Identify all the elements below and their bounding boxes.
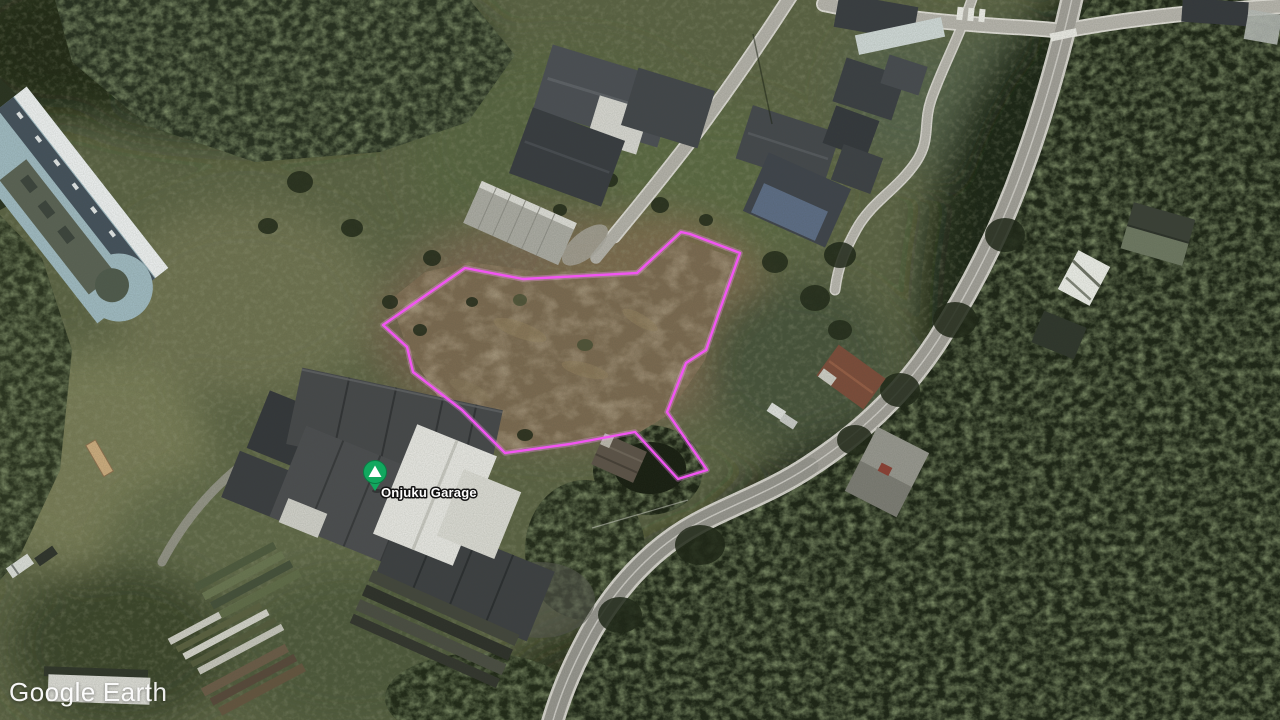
place-label: Onjuku Garage (381, 485, 477, 500)
watermark-google: Google (9, 677, 96, 707)
imagery-grain-overlay (0, 0, 1280, 720)
google-earth-watermark: GoogleEarth (9, 677, 168, 708)
earth-map-canvas[interactable]: Onjuku Garage GoogleEarth (0, 0, 1280, 720)
satellite-imagery: Onjuku Garage (0, 0, 1280, 720)
watermark-earth: Earth (103, 677, 168, 707)
